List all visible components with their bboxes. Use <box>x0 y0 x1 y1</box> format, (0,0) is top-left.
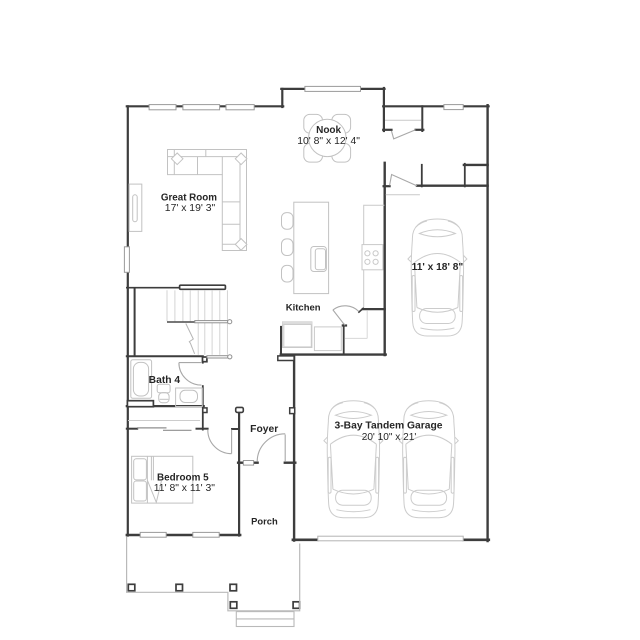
svg-text:10' 8" x 12' 4": 10' 8" x 12' 4" <box>297 136 360 147</box>
svg-text:Great Room: Great Room <box>161 192 217 203</box>
svg-text:17' x 19' 3": 17' x 19' 3" <box>165 203 216 214</box>
svg-text:Foyer: Foyer <box>250 424 278 435</box>
svg-text:11' x 18' 8": 11' x 18' 8" <box>412 262 464 273</box>
svg-text:20' 10" x 21': 20' 10" x 21' <box>362 432 417 443</box>
svg-text:Porch: Porch <box>251 515 278 526</box>
svg-text:3-Bay Tandem Garage: 3-Bay Tandem Garage <box>335 420 443 431</box>
svg-text:Kitchen: Kitchen <box>286 302 321 313</box>
svg-text:Bath 4: Bath 4 <box>149 375 181 386</box>
svg-text:11' 8" x 11' 3": 11' 8" x 11' 3" <box>154 483 216 494</box>
svg-text:Nook: Nook <box>316 125 341 136</box>
